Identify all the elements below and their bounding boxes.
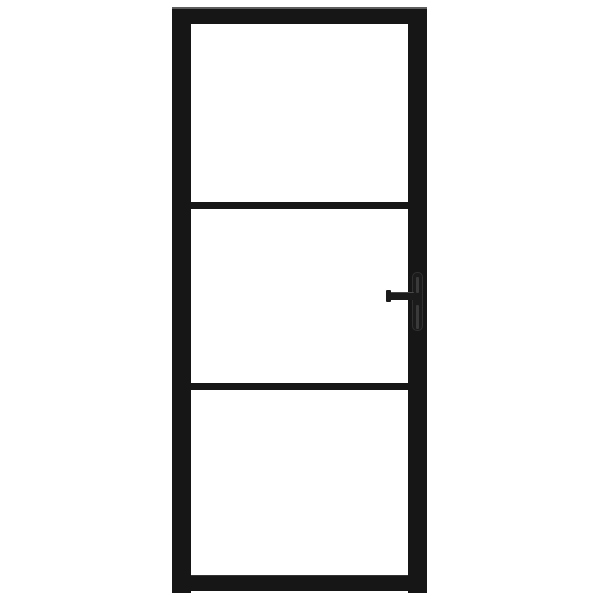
right-stile-foot	[408, 591, 427, 593]
divider-bar-lower	[189, 383, 410, 390]
top-rail-highlight	[172, 7, 427, 9]
glass-pane-bottom	[191, 390, 408, 575]
divider-bar-upper	[189, 202, 410, 209]
bottom-rail-highlight	[191, 575, 408, 576]
glass-pane-top	[191, 24, 408, 202]
left-stile-foot	[172, 591, 191, 593]
glass-pane-middle	[191, 209, 408, 383]
door-handle-lever	[388, 292, 414, 300]
backplate-slot-top	[416, 277, 419, 293]
product-photo-backdrop	[0, 0, 600, 600]
backplate-slot-bottom	[416, 305, 419, 329]
door-handle-lever-end-cap	[386, 290, 391, 302]
